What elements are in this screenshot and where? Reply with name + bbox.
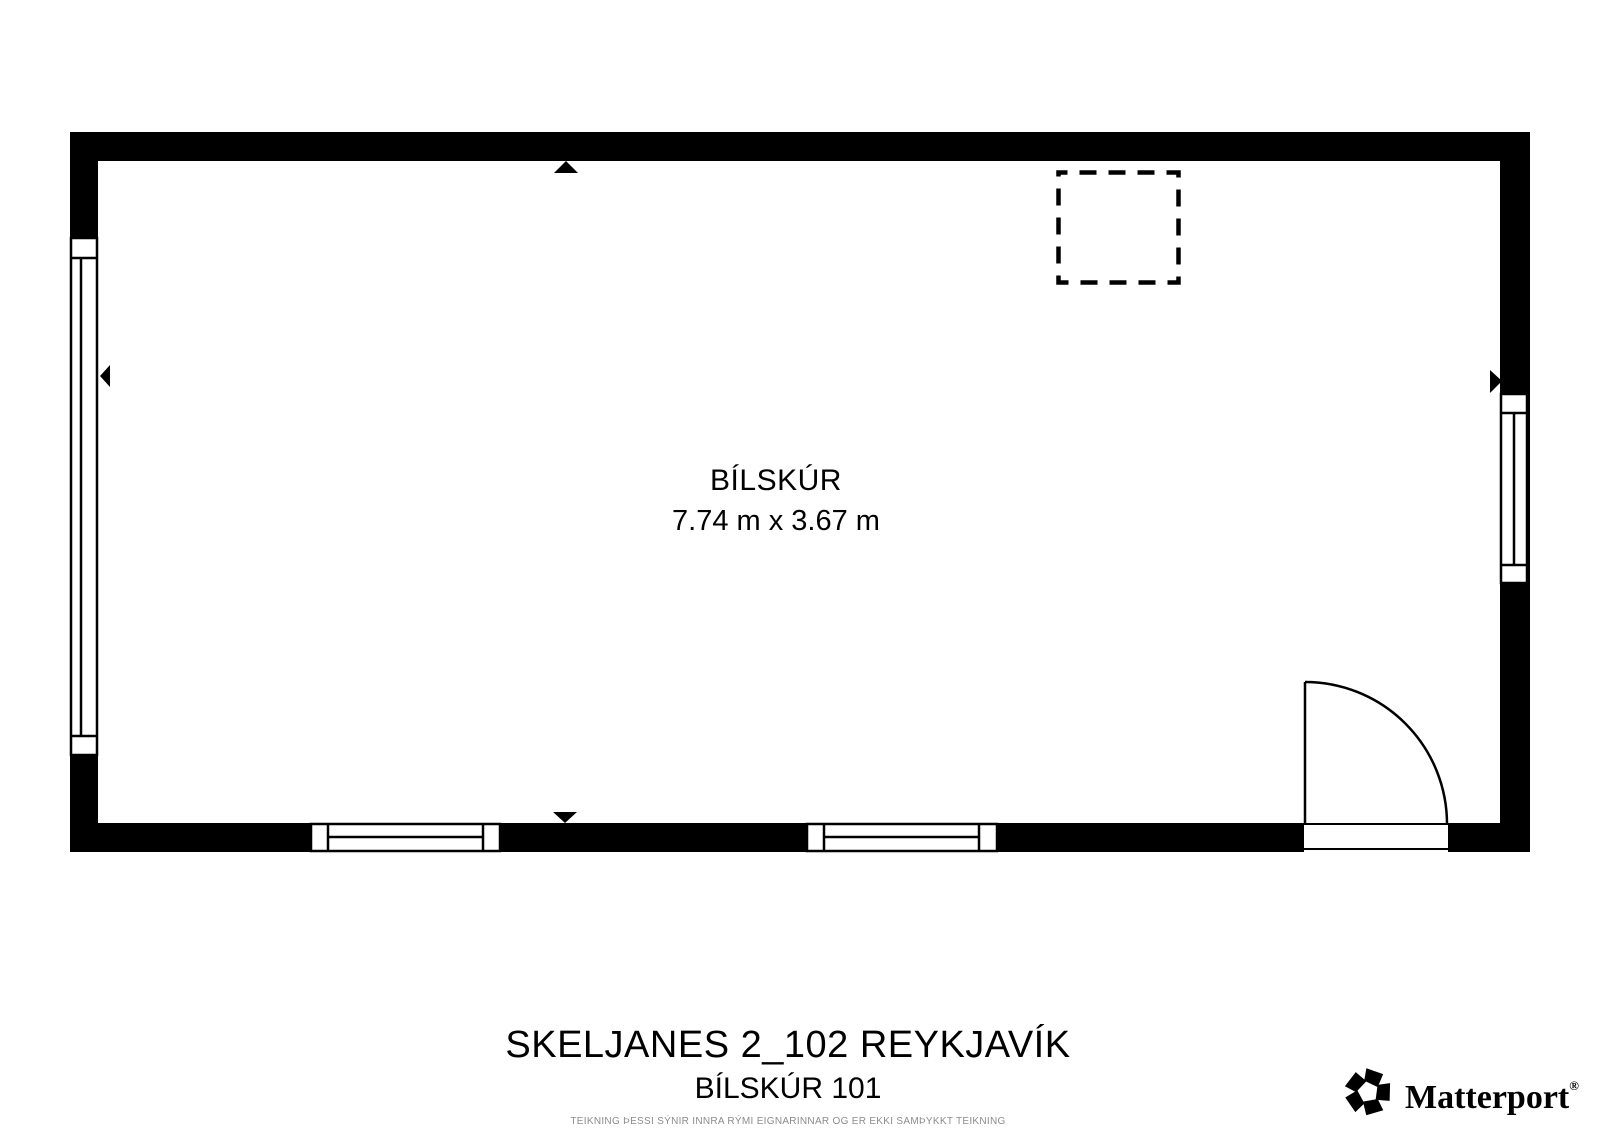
room-name: BÍLSKÚR bbox=[476, 462, 1076, 500]
matterport-pinwheel-icon bbox=[1341, 1064, 1395, 1120]
window-left-wall bbox=[70, 238, 98, 755]
disclaimer-text: TEIKNING ÞESSI SÝNIR INNRA RÝMI EIGNARIN… bbox=[388, 1115, 1188, 1128]
floor-plan-drawing bbox=[0, 0, 1600, 1131]
window-right-wall bbox=[1500, 394, 1528, 583]
room-dimensions: 7.74 m x 3.67 m bbox=[476, 503, 1076, 539]
brand-wordmark: Matterport® bbox=[1405, 1058, 1579, 1126]
window-bottom-left bbox=[311, 823, 500, 852]
window-bottom-center bbox=[807, 823, 997, 852]
property-subtitle: BÍLSKÚR 101 bbox=[388, 1070, 1188, 1108]
floor-plan-page: BÍLSKÚR 7.74 m x 3.67 m SKELJANES 2_102 … bbox=[0, 0, 1600, 1131]
brand-name-text: Matterport bbox=[1405, 1079, 1569, 1116]
room-label: BÍLSKÚR 7.74 m x 3.67 m bbox=[476, 462, 1076, 539]
registered-trademark-symbol: ® bbox=[1569, 1078, 1579, 1093]
footer: SKELJANES 2_102 REYKJAVÍK BÍLSKÚR 101 TE… bbox=[388, 1022, 1188, 1128]
brand-logo: Matterport® bbox=[1341, 1064, 1579, 1120]
property-title: SKELJANES 2_102 REYKJAVÍK bbox=[388, 1022, 1188, 1068]
